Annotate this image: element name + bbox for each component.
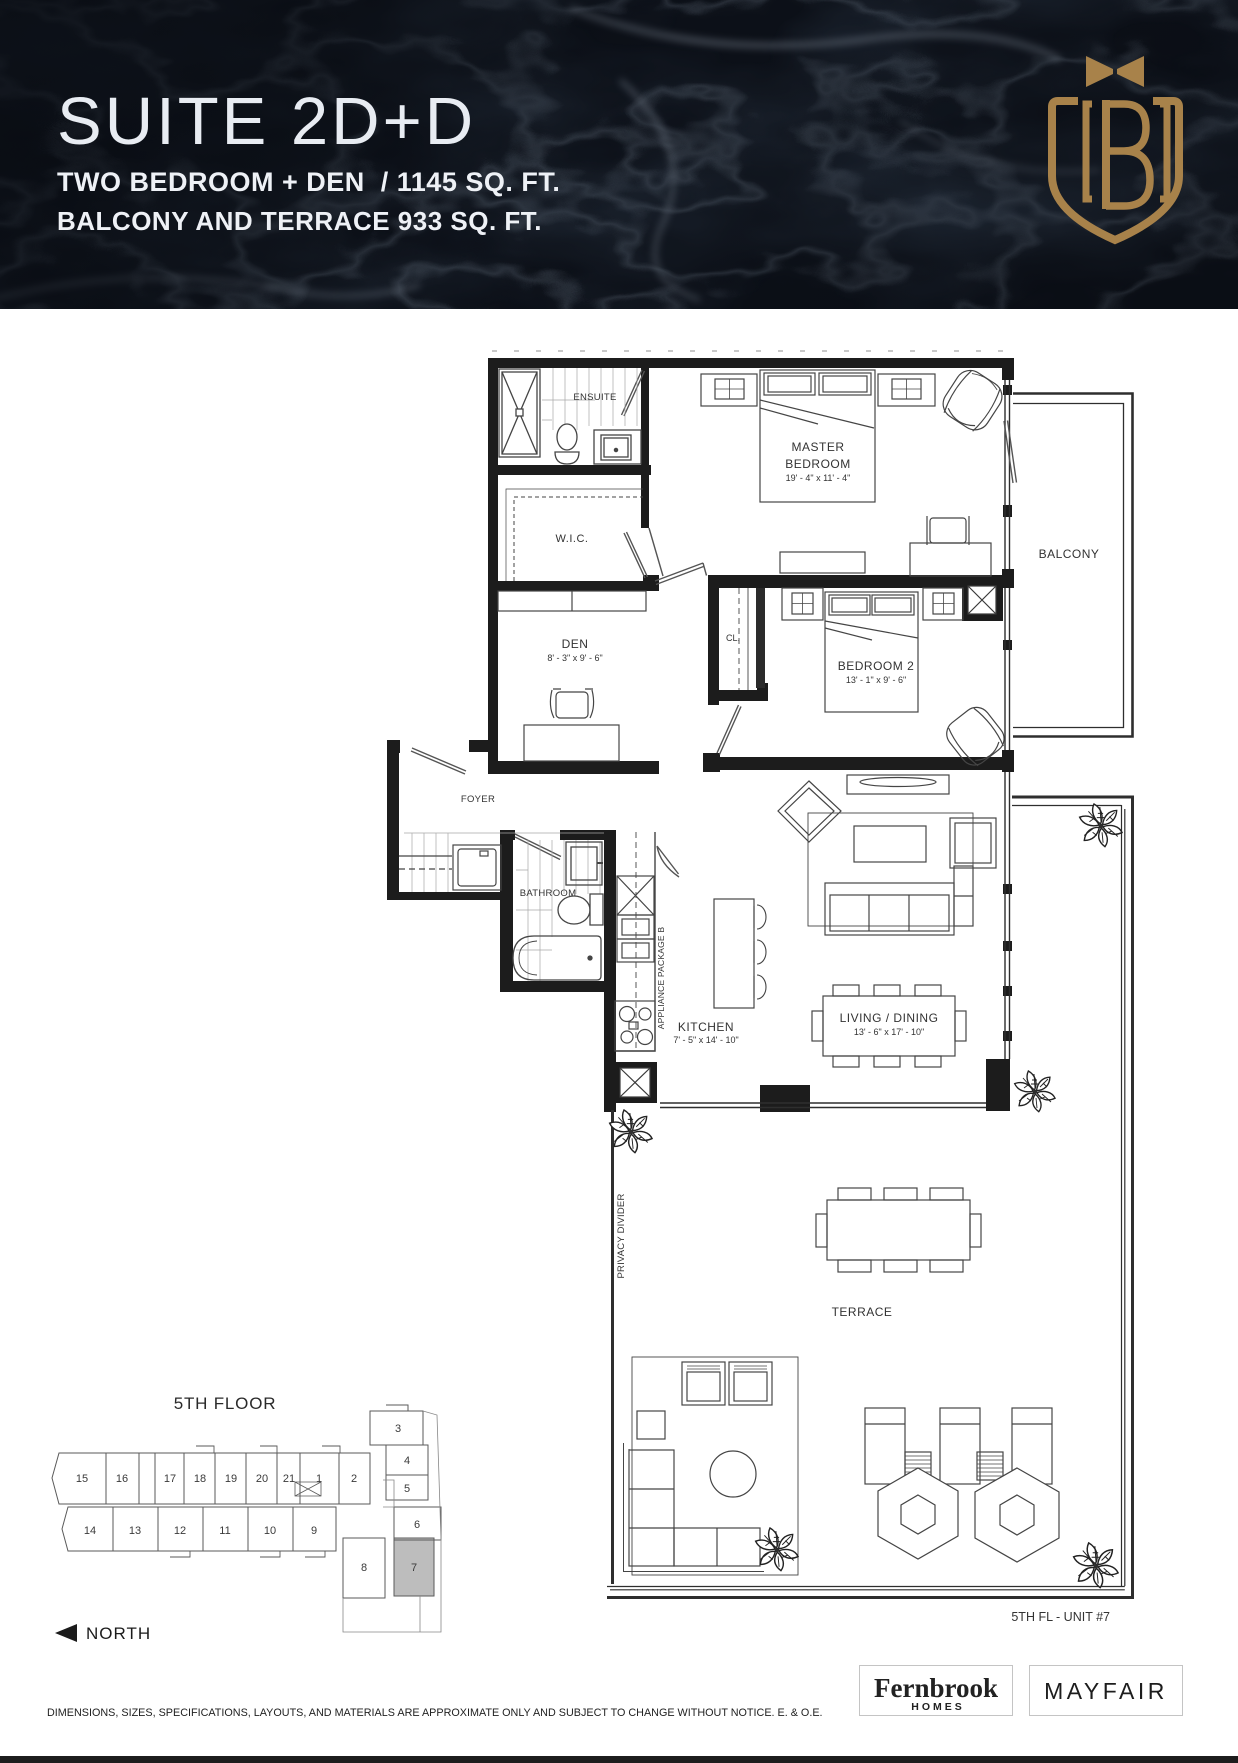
svg-text:7: 7 [411,1562,417,1574]
svg-text:BATHROOM: BATHROOM [520,888,577,899]
svg-text:19: 19 [225,1473,237,1485]
svg-text:20: 20 [256,1473,268,1485]
svg-text:5TH FLOOR: 5TH FLOOR [174,1394,277,1413]
svg-text:10: 10 [264,1525,276,1537]
svg-text:ENSUITE: ENSUITE [573,392,616,403]
svg-text:3: 3 [395,1423,401,1435]
svg-text:15: 15 [76,1473,88,1485]
svg-text:13: 13 [129,1525,141,1537]
svg-text:18: 18 [194,1473,206,1485]
svg-text:TERRACE: TERRACE [832,1305,893,1319]
svg-text:W.I.C.: W.I.C. [556,533,589,545]
svg-text:8' - 3" x 9' - 6": 8' - 3" x 9' - 6" [547,653,602,663]
svg-text:KITCHEN: KITCHEN [678,1020,734,1034]
svg-text:1: 1 [316,1473,322,1485]
svg-text:5TH FL - UNIT #7: 5TH FL - UNIT #7 [1011,1610,1110,1624]
svg-text:21: 21 [283,1473,295,1485]
svg-text:17: 17 [164,1473,176,1485]
svg-text:Fernbrook: Fernbrook [874,1673,998,1703]
svg-text:14: 14 [84,1525,96,1537]
svg-text:9: 9 [311,1525,317,1537]
svg-text:APPLIANCE PACKAGE B: APPLIANCE PACKAGE B [656,927,666,1030]
svg-text:6: 6 [414,1519,420,1531]
svg-text:13' - 6" x 17' - 10": 13' - 6" x 17' - 10" [854,1027,924,1037]
svg-text:DEN: DEN [562,637,589,651]
svg-text:BEDROOM: BEDROOM [785,457,851,471]
svg-text:CL.: CL. [726,633,740,643]
svg-text:12: 12 [174,1525,186,1537]
svg-text:8: 8 [361,1562,367,1574]
svg-text:PRIVACY DIVIDER: PRIVACY DIVIDER [616,1193,627,1278]
svg-text:MAYFAIR: MAYFAIR [1044,1678,1168,1704]
svg-text:NORTH: NORTH [86,1624,151,1643]
svg-text:BEDROOM 2: BEDROOM 2 [838,659,915,673]
svg-text:7' - 5" x 14' - 10": 7' - 5" x 14' - 10" [673,1035,738,1045]
svg-text:BALCONY: BALCONY [1039,547,1100,561]
svg-text:FOYER: FOYER [461,794,495,805]
svg-text:MASTER: MASTER [791,440,844,454]
svg-text:19' - 4" x 11' - 4": 19' - 4" x 11' - 4" [786,473,851,483]
svg-text:11: 11 [219,1525,230,1537]
svg-text:13' - 1" x 9' - 6": 13' - 1" x 9' - 6" [846,675,906,685]
svg-text:2: 2 [351,1473,357,1485]
svg-text:DIMENSIONS, SIZES, SPECIFICATI: DIMENSIONS, SIZES, SPECIFICATIONS, LAYOU… [47,1707,823,1719]
svg-text:HOMES: HOMES [911,1701,965,1713]
svg-text:4: 4 [404,1455,410,1467]
svg-text:LIVING / DINING: LIVING / DINING [840,1011,939,1025]
svg-text:16: 16 [116,1473,128,1485]
svg-text:5: 5 [404,1483,410,1495]
